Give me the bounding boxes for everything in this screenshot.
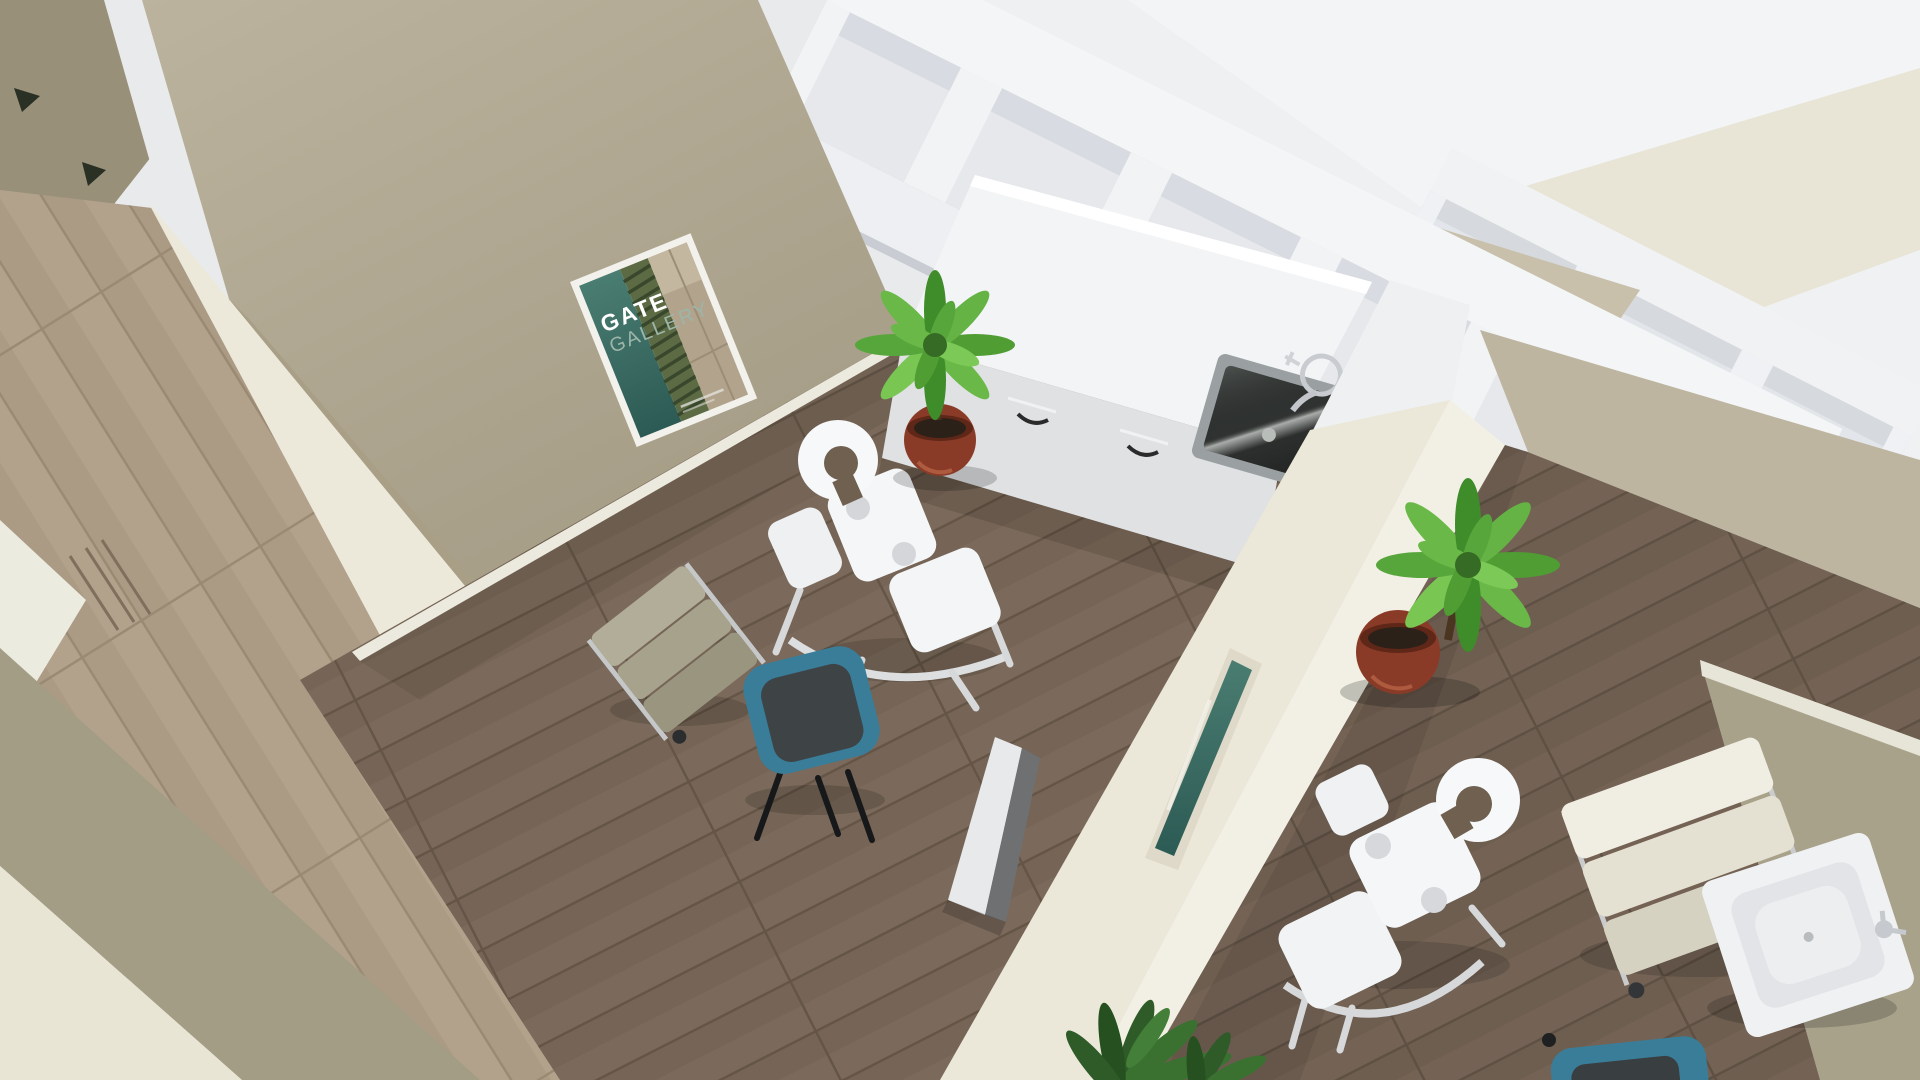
interior-render: GATE GALLERY [0, 0, 1920, 1080]
render-viewport: GATE GALLERY [0, 0, 1920, 1080]
